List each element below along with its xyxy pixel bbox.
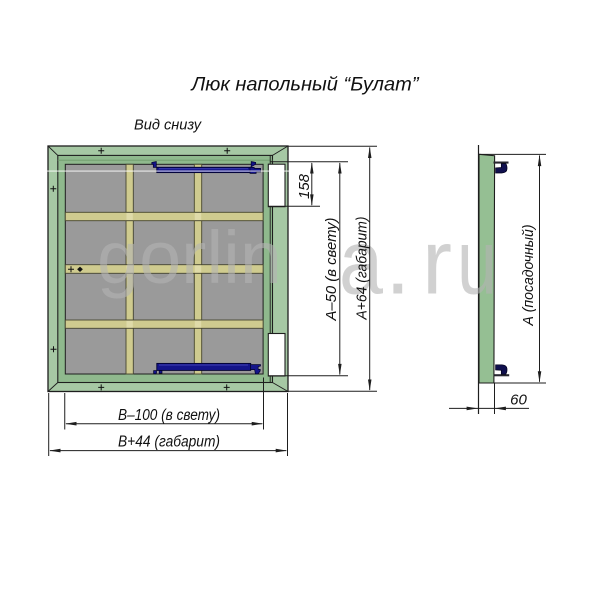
svg-text:60: 60	[510, 392, 527, 409]
svg-text:158: 158	[296, 173, 313, 199]
svg-text:В–100 (в свету): В–100 (в свету)	[118, 407, 220, 424]
svg-text:u: u	[457, 212, 497, 314]
svg-text:В+44 (габарит): В+44 (габарит)	[118, 434, 220, 451]
svg-text:.: .	[385, 212, 411, 314]
svg-text:А–50 (в свету): А–50 (в свету)	[323, 218, 340, 322]
svg-text:Люк напольный “Булат”: Люк напольный “Булат”	[189, 75, 420, 96]
svg-text:gorlin: gorlin	[97, 216, 282, 299]
svg-text:А (посадочный): А (посадочный)	[520, 225, 537, 327]
svg-text:А+64 (габарит): А+64 (габарит)	[354, 216, 371, 320]
svg-text:r: r	[422, 212, 452, 314]
svg-text:Вид снизу: Вид снизу	[134, 118, 202, 134]
